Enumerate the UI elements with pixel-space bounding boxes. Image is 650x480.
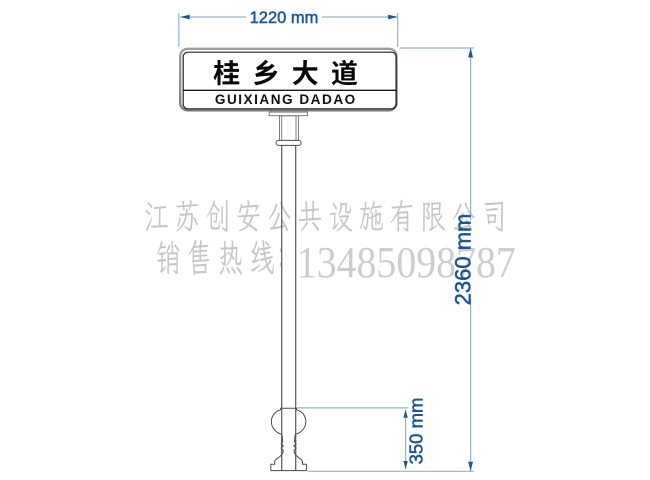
svg-text:GUIXIANG DADAO: GUIXIANG DADAO	[215, 92, 357, 107]
svg-text:1220 mm: 1220 mm	[250, 9, 319, 27]
svg-text:13485098787: 13485098787	[297, 237, 516, 287]
svg-text:2360 mm: 2360 mm	[450, 214, 475, 306]
svg-text:350 mm: 350 mm	[405, 398, 426, 465]
